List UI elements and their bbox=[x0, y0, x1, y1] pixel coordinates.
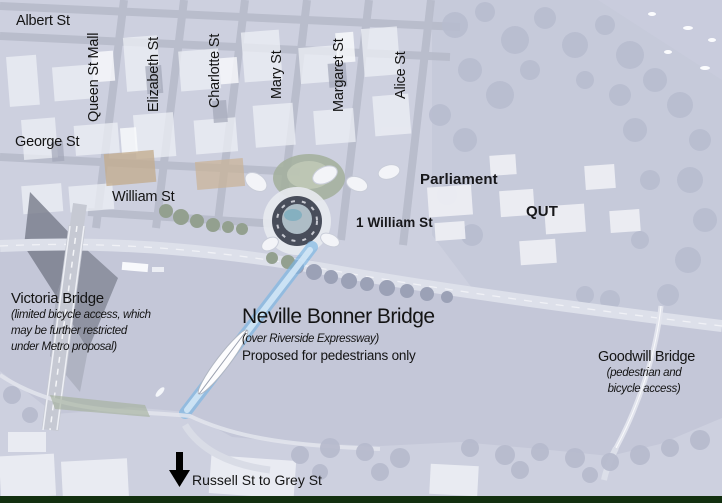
goodwill-bridge-annotation: Goodwill Bridge (pedestrian and bicycle … bbox=[598, 349, 695, 397]
street-label-queen-st-mall: Queen St Mall bbox=[86, 33, 102, 122]
casino-pool bbox=[284, 209, 302, 221]
satellite-map-background bbox=[0, 0, 722, 503]
place-label-parliament: Parliament bbox=[420, 171, 498, 188]
victoria-bridge-annotation: Victoria Bridge (limited bicycle access,… bbox=[11, 290, 151, 355]
street-label-alice: Alice St bbox=[393, 51, 409, 99]
victoria-bridge-note-line2: may be further restricted bbox=[11, 323, 151, 339]
victoria-bridge-title: Victoria Bridge bbox=[11, 290, 151, 307]
street-label-charlotte: Charlotte St bbox=[207, 34, 223, 108]
street-label-albert: Albert St bbox=[16, 13, 70, 29]
street-label-william: William St bbox=[112, 189, 174, 205]
street-label-george: George St bbox=[15, 134, 79, 150]
street-label-mary: Mary St bbox=[269, 50, 285, 99]
victoria-bridge-note-line3: under Metro proposal) bbox=[11, 339, 151, 355]
goodwill-bridge-note-line2: bicycle access) bbox=[598, 381, 690, 397]
annotated-brisbane-map: Albert St Queen St Mall Elizabeth St Cha… bbox=[0, 0, 722, 503]
place-label-1-william-st: 1 William St bbox=[356, 215, 433, 230]
down-arrow-icon bbox=[166, 450, 194, 490]
victoria-bridge-note-line1: (limited bicycle access, which bbox=[11, 307, 151, 323]
street-label-margaret: Margaret St bbox=[331, 38, 347, 112]
bottom-band bbox=[0, 496, 722, 503]
neville-bonner-bridge-title: Neville Bonner Bridge bbox=[242, 305, 435, 329]
neville-bonner-bridge-status: Proposed for pedestrians only bbox=[242, 348, 435, 363]
russell-st-note: Russell St to Grey St bbox=[192, 472, 322, 488]
street-label-elizabeth: Elizabeth St bbox=[146, 37, 162, 112]
neville-bonner-bridge-annotation: Neville Bonner Bridge (over Riverside Ex… bbox=[242, 305, 435, 363]
place-label-qut: QUT bbox=[526, 203, 558, 220]
goodwill-bridge-title: Goodwill Bridge bbox=[598, 349, 695, 365]
neville-bonner-bridge-subtitle: (over Riverside Expressway) bbox=[242, 331, 435, 347]
goodwill-bridge-note-line1: (pedestrian and bbox=[598, 365, 690, 381]
